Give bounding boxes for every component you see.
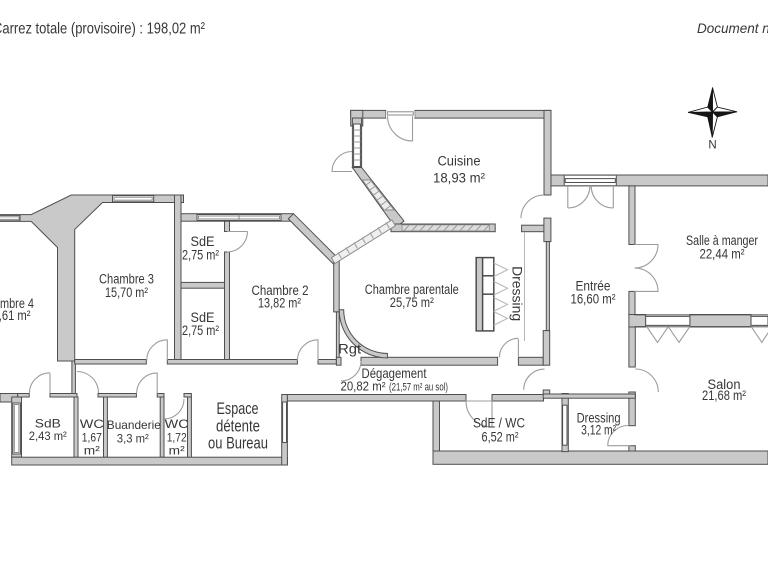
svg-text:Cuisine: Cuisine [438,154,481,169]
svg-text:22,44 m²: 22,44 m² [700,246,745,261]
svg-text:25,75 m²: 25,75 m² [390,295,434,310]
svg-text:Buanderie: Buanderie [107,418,161,432]
svg-text:Dressing: Dressing [510,266,525,321]
svg-text:ou Bureau: ou Bureau [208,434,268,453]
svg-text:9,61 m²: 9,61 m² [0,308,31,323]
svg-text:15,70 m²: 15,70 m² [105,285,148,300]
svg-text:18,93 m²: 18,93 m² [433,171,485,186]
svg-text:Rgt: Rgt [338,342,361,357]
svg-text:2,43 m²: 2,43 m² [29,429,67,443]
svg-text:Espace: Espace [217,399,259,418]
svg-text:13,82 m²: 13,82 m² [258,295,301,310]
svg-text:(21,57 m² au sol): (21,57 m² au sol) [389,381,448,393]
svg-text:Document non contractuel: Document non contractuel [697,21,768,36]
svg-text:16,60 m²: 16,60 m² [571,291,616,306]
svg-text:m²: m² [84,443,100,457]
svg-text:3,12 m²: 3,12 m² [581,422,616,437]
svg-text:WC: WC [80,417,104,431]
svg-text:6,52 m²: 6,52 m² [482,429,519,444]
svg-text:2,75 m²: 2,75 m² [182,247,219,262]
svg-text:20,82 m²: 20,82 m² [341,379,386,393]
svg-text:3,3 m²: 3,3 m² [117,431,149,445]
svg-text:m²: m² [169,443,185,457]
svg-text:N: N [708,140,716,152]
svg-text:2,75 m²: 2,75 m² [182,323,219,338]
svg-text:SdE / WC: SdE / WC [473,415,525,430]
svg-text:Carrez totale (provisoire) : 1: Carrez totale (provisoire) : 198,02 m² [0,21,206,38]
svg-text:WC: WC [165,417,189,431]
svg-text:21,68 m²: 21,68 m² [702,388,746,403]
